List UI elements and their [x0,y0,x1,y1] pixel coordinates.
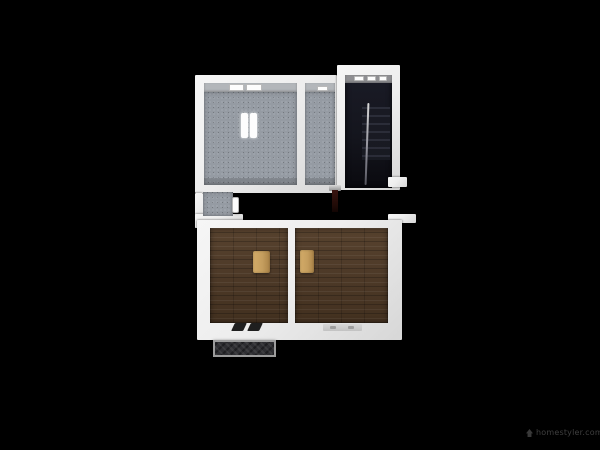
watermark: homestyler.com [526,429,600,437]
rug [300,250,314,273]
homestyler-logo-icon [526,429,533,437]
upper-section-walls [195,75,337,193]
vent-icon [367,76,376,81]
window-sill-icon [323,324,362,331]
door-threshold-icon [231,323,247,331]
window-icon [246,84,262,91]
ceiling-light-icon [241,113,248,138]
lower-section-walls [197,220,402,340]
vent-icon [354,76,364,81]
room-upper-left-carpet-floor [204,92,297,185]
hallway-carpet-floor [305,92,335,185]
newel-post [332,190,338,212]
room-lower-left-wood-floor [210,228,288,323]
rug [253,251,270,273]
vent-icon [317,86,328,91]
stairwell-floor [345,75,392,188]
vent-icon [379,76,387,81]
door-threshold-icon [247,323,263,331]
door-leaf-icon [232,197,239,213]
ceiling-light-icon [250,113,257,138]
stairwell-wall-foot [388,177,407,187]
window-icon [229,84,244,91]
floor-shadow [204,178,297,185]
window-handle-icon [348,326,354,329]
entry-stoop [213,340,276,357]
vestibule-carpet-floor [203,192,233,216]
watermark-text: homestyler.com [536,429,600,437]
floorplan-render: homestyler.com [0,0,600,450]
window-handle-icon [330,326,336,329]
stairwell-walls [337,65,400,190]
room-lower-right-wood-floor [295,228,388,323]
floor-shadow [305,178,335,185]
